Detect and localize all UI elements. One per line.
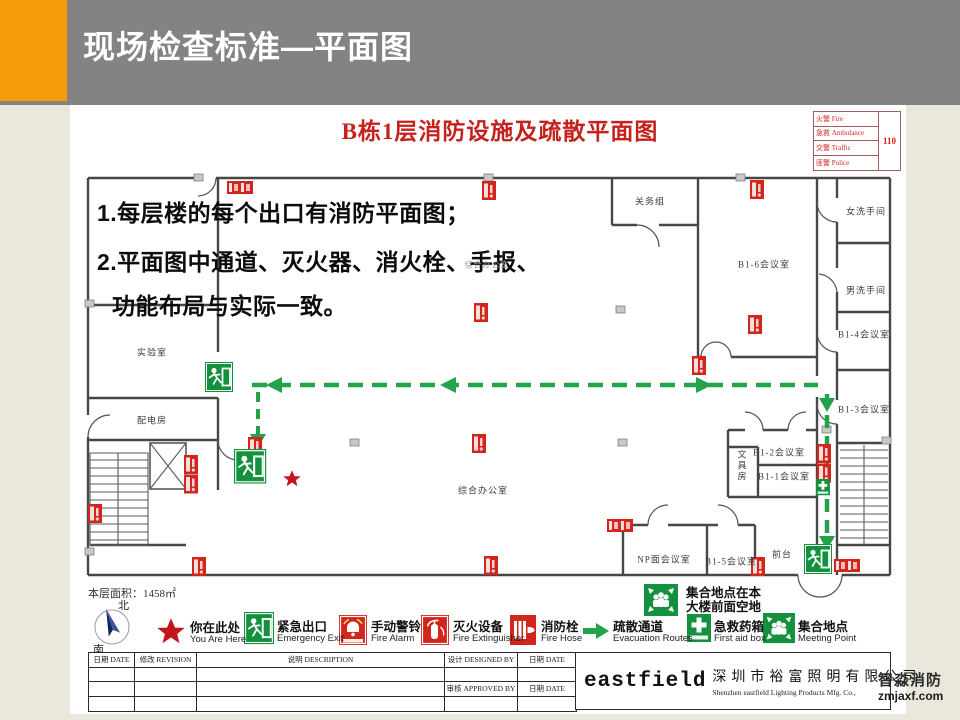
revision-table: 日期 DATE 修改 REVISION 说明 DESCRIPTION 设计 DE… [88,652,577,712]
table-cell-empty [135,682,197,697]
you-are-here-star-icon [283,470,301,486]
fire-extinguisher-icon [607,519,633,532]
fire-extinguisher-icon [192,557,206,576]
fire-extinguisher-icon [692,356,706,375]
emergency-exit-icon [205,362,233,392]
th-revision: 修改 REVISION [135,653,197,668]
company-logo: eastfield [584,670,706,693]
note-line-1: 1.每层楼的每个出口有消防平面图； [97,194,470,228]
legend-fire-alarm: 手动警铃 Fire Alarm [371,620,421,645]
room-label-wc-men: 男洗手间 [846,284,886,297]
room-label-lab: 实验室 [137,346,167,359]
meeting-point-icon [644,584,678,616]
table-cell-empty [518,668,576,683]
compass-north-label: 北 [118,597,129,613]
legend-you-are-here: 你在此处 You Are Here [190,621,246,646]
fire-extinguisher-icon [834,559,860,572]
table-cell-empty [135,668,197,683]
fire-extinguisher-icon [472,434,486,453]
emergency-exit-icon [234,449,266,484]
watermark-logo-space [841,672,875,704]
legend-emergency-exit: 紧急出口 Emergency Exit [277,620,344,645]
legend-fire-extinguisher: 灭火设备 Fire Extinguisher [453,620,524,645]
emergency-exit-icon [804,544,832,574]
watermark-url: zmjaxf.com [878,690,943,703]
legend-meeting-icon [763,613,795,643]
room-label-np: NP面会议室 [637,553,691,566]
fire-extinguisher-icon [750,180,764,199]
legend-fire-hose: 消防栓 Fire Hose [541,620,582,645]
table-cell-empty [197,668,445,683]
room-label-b12: B1-2会议室 [753,446,805,459]
floorplan-svg [0,0,960,720]
th-date: 日期 DATE [89,653,135,668]
legend-meeting-point: 集合地点 Meeting Point [798,620,856,645]
fire-extinguisher-icon [88,504,102,523]
th-date3: 日期 DATE [518,682,576,697]
table-cell-empty [445,668,518,683]
legend-evacuation-routes: 疏散通道 Evacuation Routes [613,620,693,645]
table-cell-empty [89,668,135,683]
fire-equipment-icons [88,180,860,576]
fire-extinguisher-icon [748,315,762,334]
legend-star-icon [157,618,185,643]
table-cell-empty [89,682,135,697]
legend-first-aid: 急救药箱 First aid box [714,620,766,645]
table-cell-empty [445,697,518,712]
legend-extinguisher-icon [421,615,449,645]
legend-exit-icon [244,612,274,644]
floor-area-text: 本层面积：1458㎡ [88,585,176,601]
room-label-b11: B1-1会议室 [758,470,810,483]
room-label-b15: B1-5会议室 [705,555,757,568]
first-aid-icon [816,479,830,495]
room-label-power: 配电房 [137,414,167,427]
fire-extinguisher-icon [474,303,488,322]
note-line-3: 功能布局与实际一致。 [112,287,347,321]
th-designed-by: 设计 DESIGNED BY [445,653,518,668]
th-approved-by: 审核 APPROVED BY [445,682,518,697]
table-cell-empty [197,697,445,712]
fire-extinguisher-icon [482,181,496,200]
table-cell-empty [197,682,445,697]
meeting-note: 集合地点在本 大楼前面空地 [686,586,761,615]
room-label-customs: 关务组 [635,195,665,208]
legend-route-arrow-icon [583,623,609,639]
table-cell-empty [89,697,135,712]
th-date2: 日期 DATE [518,653,576,668]
watermark: 智淼消防 zmjaxf.com [841,672,943,704]
room-label-wc-women: 女洗手间 [846,205,886,218]
room-label-stationery: 文具房 [736,450,749,483]
door-arcs [88,178,842,597]
watermark-name: 智淼消防 [878,673,943,690]
room-label-office-small: 综合办公室 [465,260,510,271]
room-label-b14: B1-4会议室 [838,328,890,341]
room-label-office: 综合办公室 [458,484,508,497]
th-description: 说明 DESCRIPTION [197,653,445,668]
fire-extinguisher-icon [227,181,253,194]
room-label-b16: B1-6会议室 [738,258,790,271]
room-label-front-desk: 前台 [772,548,792,561]
room-label-b13: B1-3会议室 [838,403,890,416]
fire-extinguisher-icon [484,556,498,575]
table-cell-empty [135,697,197,712]
table-cell-empty [518,697,576,712]
